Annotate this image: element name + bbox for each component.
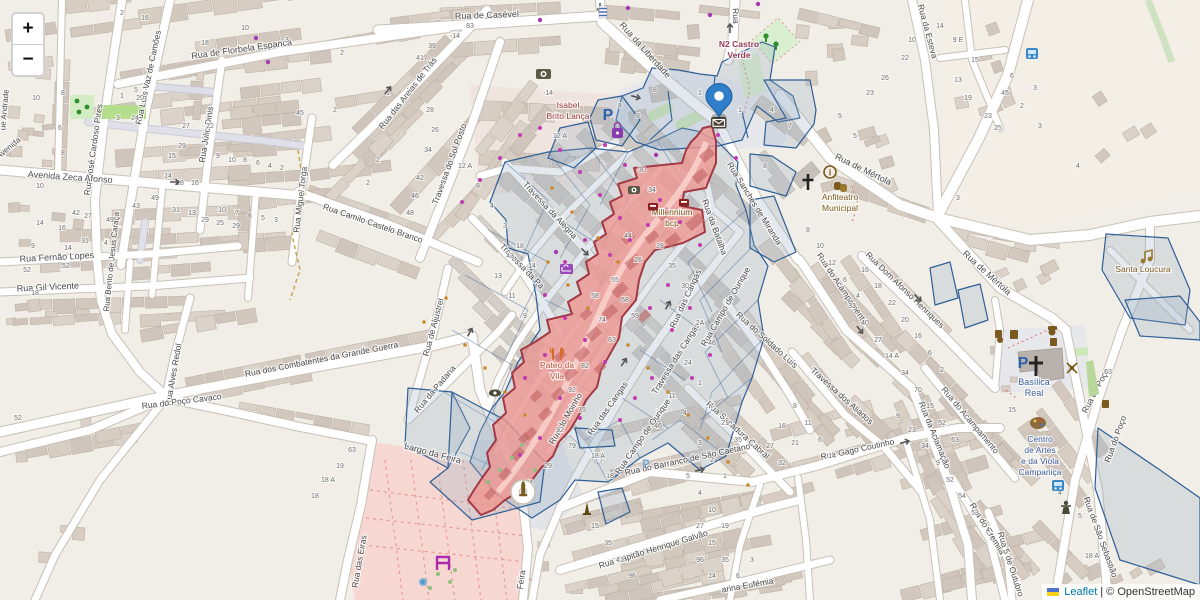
svg-text:5: 5 <box>686 473 690 480</box>
svg-text:8: 8 <box>476 183 480 190</box>
svg-text:de Artes: de Artes <box>1024 445 1055 455</box>
svg-text:30: 30 <box>638 167 646 174</box>
svg-text:52: 52 <box>14 415 22 422</box>
svg-text:15: 15 <box>168 153 176 160</box>
svg-text:42: 42 <box>72 210 80 217</box>
svg-text:Anfiteatro: Anfiteatro <box>822 192 859 202</box>
svg-text:96: 96 <box>628 573 636 580</box>
svg-text:27: 27 <box>696 523 704 530</box>
svg-text:9: 9 <box>896 413 900 420</box>
svg-text:7: 7 <box>788 123 792 130</box>
svg-text:12 A: 12 A <box>458 163 472 170</box>
svg-text:4: 4 <box>683 410 687 417</box>
svg-text:P: P <box>1018 355 1029 372</box>
svg-text:21: 21 <box>791 440 799 447</box>
svg-text:52: 52 <box>62 263 70 270</box>
svg-text:16: 16 <box>914 333 922 340</box>
svg-text:19: 19 <box>336 463 344 470</box>
svg-text:18 A: 18 A <box>321 477 335 484</box>
svg-text:49: 49 <box>151 195 159 202</box>
svg-text:1: 1 <box>723 473 727 480</box>
svg-text:35: 35 <box>721 557 729 564</box>
svg-text:7: 7 <box>235 210 239 217</box>
svg-text:63: 63 <box>951 437 959 444</box>
svg-text:20: 20 <box>901 317 909 324</box>
svg-text:3: 3 <box>285 37 289 44</box>
svg-text:35: 35 <box>734 437 742 444</box>
svg-text:24: 24 <box>684 360 692 367</box>
svg-text:6: 6 <box>843 277 847 284</box>
svg-text:22: 22 <box>206 123 214 130</box>
svg-text:3: 3 <box>274 217 278 224</box>
svg-text:30: 30 <box>681 283 689 290</box>
svg-text:Campaniça: Campaniça <box>1019 467 1062 477</box>
svg-text:10: 10 <box>908 37 916 44</box>
svg-text:18: 18 <box>201 40 209 47</box>
svg-text:70: 70 <box>914 387 922 394</box>
svg-text:19: 19 <box>964 95 972 102</box>
svg-text:83: 83 <box>466 23 474 30</box>
svg-text:3: 3 <box>698 440 702 447</box>
svg-text:2A: 2A <box>696 320 705 327</box>
svg-text:8: 8 <box>61 150 65 157</box>
svg-text:92: 92 <box>568 387 576 394</box>
svg-text:35: 35 <box>668 263 676 270</box>
svg-text:46: 46 <box>654 423 662 430</box>
svg-text:14 A: 14 A <box>885 353 899 360</box>
svg-text:6: 6 <box>256 160 260 167</box>
svg-text:7: 7 <box>710 403 714 410</box>
svg-text:9: 9 <box>523 313 527 320</box>
svg-text:46: 46 <box>708 340 716 347</box>
svg-text:15: 15 <box>708 540 716 547</box>
svg-text:9: 9 <box>216 153 220 160</box>
svg-text:14: 14 <box>36 220 44 227</box>
svg-text:15: 15 <box>926 403 934 410</box>
svg-text:41: 41 <box>416 55 424 62</box>
svg-text:1: 1 <box>698 90 702 97</box>
svg-text:63: 63 <box>348 447 356 454</box>
svg-text:8: 8 <box>618 103 622 110</box>
svg-text:16: 16 <box>58 225 66 232</box>
svg-text:6: 6 <box>58 125 62 132</box>
svg-text:Basílica: Basílica <box>1018 377 1050 387</box>
svg-text:bcp: bcp <box>665 218 679 228</box>
svg-text:45: 45 <box>1001 90 1009 97</box>
svg-text:27: 27 <box>182 123 190 130</box>
svg-text:8: 8 <box>793 403 797 410</box>
svg-text:9 E: 9 E <box>953 37 964 44</box>
svg-text:24: 24 <box>131 115 139 122</box>
svg-text:59: 59 <box>631 313 639 320</box>
svg-text:4: 4 <box>856 293 860 300</box>
svg-text:4: 4 <box>268 163 272 170</box>
svg-text:1: 1 <box>738 107 742 114</box>
svg-text:27: 27 <box>84 213 92 220</box>
svg-text:5: 5 <box>853 133 857 140</box>
svg-text:23: 23 <box>984 113 992 120</box>
svg-text:3: 3 <box>116 115 120 122</box>
svg-text:26: 26 <box>634 257 642 264</box>
svg-text:26: 26 <box>881 75 889 82</box>
svg-text:8: 8 <box>653 87 657 94</box>
svg-text:32: 32 <box>778 460 786 467</box>
svg-text:74: 74 <box>598 317 606 324</box>
svg-text:12 A: 12 A <box>553 133 567 140</box>
svg-text:31: 31 <box>81 238 89 245</box>
svg-text:11: 11 <box>668 393 675 400</box>
svg-text:34: 34 <box>424 147 432 154</box>
svg-text:Pateo da: Pateo da <box>540 360 574 370</box>
svg-text:2: 2 <box>340 50 344 57</box>
svg-text:46: 46 <box>411 193 419 200</box>
svg-text:10: 10 <box>218 207 226 214</box>
svg-text:4: 4 <box>104 240 108 247</box>
svg-text:49: 49 <box>106 217 114 224</box>
svg-text:18: 18 <box>311 493 319 500</box>
svg-text:31: 31 <box>172 207 180 214</box>
svg-text:29: 29 <box>544 463 552 470</box>
svg-text:35: 35 <box>604 540 612 547</box>
svg-text:10: 10 <box>816 243 824 250</box>
svg-text:4: 4 <box>490 203 494 210</box>
svg-text:6: 6 <box>928 350 932 357</box>
svg-text:52: 52 <box>946 477 954 484</box>
svg-text:16: 16 <box>141 15 149 22</box>
svg-text:42: 42 <box>416 175 424 182</box>
svg-text:23: 23 <box>866 90 874 97</box>
svg-text:e da Viola: e da Viola <box>1021 456 1059 466</box>
svg-text:40: 40 <box>861 320 869 327</box>
svg-text:11: 11 <box>508 293 515 300</box>
svg-text:14: 14 <box>828 453 836 460</box>
svg-text:28: 28 <box>426 107 434 114</box>
svg-text:22: 22 <box>888 300 896 307</box>
svg-text:58: 58 <box>591 293 599 300</box>
svg-text:4: 4 <box>986 527 990 534</box>
svg-text:13: 13 <box>494 273 502 280</box>
svg-text:Rua: Rua <box>731 8 742 24</box>
svg-text:25: 25 <box>994 125 1002 132</box>
svg-text:N2 Castro: N2 Castro <box>719 39 759 49</box>
svg-text:15: 15 <box>971 57 979 64</box>
svg-text:55: 55 <box>611 277 619 284</box>
svg-text:6: 6 <box>818 437 822 444</box>
svg-text:34: 34 <box>901 370 909 377</box>
svg-text:52: 52 <box>938 420 946 427</box>
svg-text:16: 16 <box>778 423 786 430</box>
svg-text:6: 6 <box>248 213 252 220</box>
svg-text:Real: Real <box>1025 388 1044 398</box>
svg-text:10: 10 <box>228 157 236 164</box>
svg-text:3: 3 <box>750 557 754 564</box>
svg-text:12: 12 <box>828 260 836 267</box>
svg-text:14: 14 <box>708 573 716 580</box>
svg-text:5: 5 <box>1078 513 1082 520</box>
svg-text:10: 10 <box>708 507 716 514</box>
svg-text:Isabel: Isabel <box>557 100 580 110</box>
svg-text:18: 18 <box>31 290 39 297</box>
svg-text:96: 96 <box>696 557 704 564</box>
svg-text:11: 11 <box>804 420 811 427</box>
svg-text:10: 10 <box>36 183 44 190</box>
svg-text:10: 10 <box>32 95 40 102</box>
svg-text:2: 2 <box>710 457 714 464</box>
svg-text:5: 5 <box>838 113 842 120</box>
svg-text:-14: -14 <box>450 33 460 40</box>
svg-text:5: 5 <box>261 215 265 222</box>
svg-text:3: 3 <box>503 223 507 230</box>
svg-text:27: 27 <box>874 337 882 344</box>
svg-text:14: 14 <box>528 263 536 270</box>
svg-text:6: 6 <box>1010 73 1014 80</box>
svg-text:13: 13 <box>954 77 962 84</box>
svg-text:2: 2 <box>280 165 284 172</box>
svg-text:63: 63 <box>1104 369 1112 376</box>
svg-text:P: P <box>642 457 650 471</box>
svg-text:34: 34 <box>648 187 656 194</box>
svg-text:8: 8 <box>243 157 247 164</box>
svg-text:22: 22 <box>901 55 909 62</box>
svg-text:4: 4 <box>770 107 774 114</box>
svg-text:16: 16 <box>861 267 869 274</box>
svg-text:26: 26 <box>431 127 439 134</box>
svg-text:Verde: Verde <box>727 50 750 60</box>
svg-text:3: 3 <box>636 113 640 120</box>
svg-text:48: 48 <box>406 210 414 217</box>
svg-text:82: 82 <box>581 363 589 370</box>
svg-text:9: 9 <box>31 243 35 250</box>
svg-text:14: 14 <box>64 245 72 252</box>
svg-text:2: 2 <box>1020 103 1024 110</box>
svg-text:28: 28 <box>656 243 664 250</box>
svg-text:23: 23 <box>908 427 916 434</box>
svg-text:Brito Lança: Brito Lança <box>547 111 590 121</box>
svg-text:52: 52 <box>23 267 31 274</box>
svg-text:53: 53 <box>971 510 979 517</box>
svg-text:43: 43 <box>506 253 514 260</box>
svg-text:27: 27 <box>766 443 774 450</box>
svg-text:8: 8 <box>61 90 65 97</box>
svg-text:4: 4 <box>1076 163 1080 170</box>
svg-text:2: 2 <box>120 10 124 17</box>
svg-text:2: 2 <box>366 180 370 187</box>
svg-text:29: 29 <box>232 223 240 230</box>
svg-text:18 A: 18 A <box>1085 553 1099 560</box>
svg-text:18 A: 18 A <box>591 453 605 460</box>
svg-text:63: 63 <box>608 337 616 344</box>
svg-text:43: 43 <box>132 203 140 210</box>
svg-text:15: 15 <box>591 523 599 530</box>
svg-text:18: 18 <box>606 473 614 480</box>
svg-text:41: 41 <box>616 557 624 564</box>
svg-text:2: 2 <box>940 367 944 374</box>
svg-text:14: 14 <box>936 23 944 30</box>
svg-text:3: 3 <box>1038 123 1042 130</box>
svg-text:29: 29 <box>201 217 209 224</box>
svg-text:14: 14 <box>164 173 172 180</box>
svg-text:21: 21 <box>721 420 729 427</box>
svg-text:19: 19 <box>721 523 729 530</box>
svg-text:Municipal: Municipal <box>822 203 858 213</box>
svg-text:10: 10 <box>241 25 249 32</box>
svg-text:8: 8 <box>806 227 810 234</box>
svg-text:Santa Loucura: Santa Loucura <box>1115 264 1171 274</box>
svg-text:25: 25 <box>216 220 224 227</box>
svg-text:33: 33 <box>848 303 856 310</box>
svg-text:39: 39 <box>428 43 436 50</box>
svg-text:P: P <box>603 107 614 124</box>
svg-text:54: 54 <box>958 493 966 500</box>
svg-text:13: 13 <box>188 210 196 217</box>
svg-text:2: 2 <box>376 157 380 164</box>
svg-text:3: 3 <box>1033 85 1037 92</box>
svg-text:2: 2 <box>333 107 337 114</box>
svg-text:6: 6 <box>736 573 740 580</box>
svg-text:4: 4 <box>1058 490 1062 497</box>
svg-text:15: 15 <box>1008 407 1016 414</box>
svg-text:1: 1 <box>698 380 702 387</box>
svg-text:Centro: Centro <box>1027 434 1053 444</box>
svg-text:18: 18 <box>874 283 882 290</box>
svg-text:16: 16 <box>191 180 199 187</box>
svg-text:8: 8 <box>763 163 767 170</box>
svg-text:4: 4 <box>698 490 702 497</box>
svg-text:18: 18 <box>516 243 524 250</box>
svg-text:3: 3 <box>956 195 960 202</box>
svg-text:20: 20 <box>136 95 144 102</box>
svg-text:-14: -14 <box>543 90 553 97</box>
svg-text:68: 68 <box>621 297 629 304</box>
svg-text:5: 5 <box>134 87 138 94</box>
svg-text:i: i <box>829 168 832 178</box>
svg-text:34: 34 <box>921 443 929 450</box>
svg-text:9: 9 <box>936 460 940 467</box>
svg-text:79: 79 <box>568 443 576 450</box>
svg-text:92: 92 <box>556 427 564 434</box>
svg-text:45: 45 <box>296 110 304 117</box>
svg-text:1: 1 <box>120 93 124 100</box>
svg-text:79: 79 <box>578 407 586 414</box>
svg-text:29: 29 <box>178 143 186 150</box>
svg-text:Vila: Vila <box>550 371 564 381</box>
